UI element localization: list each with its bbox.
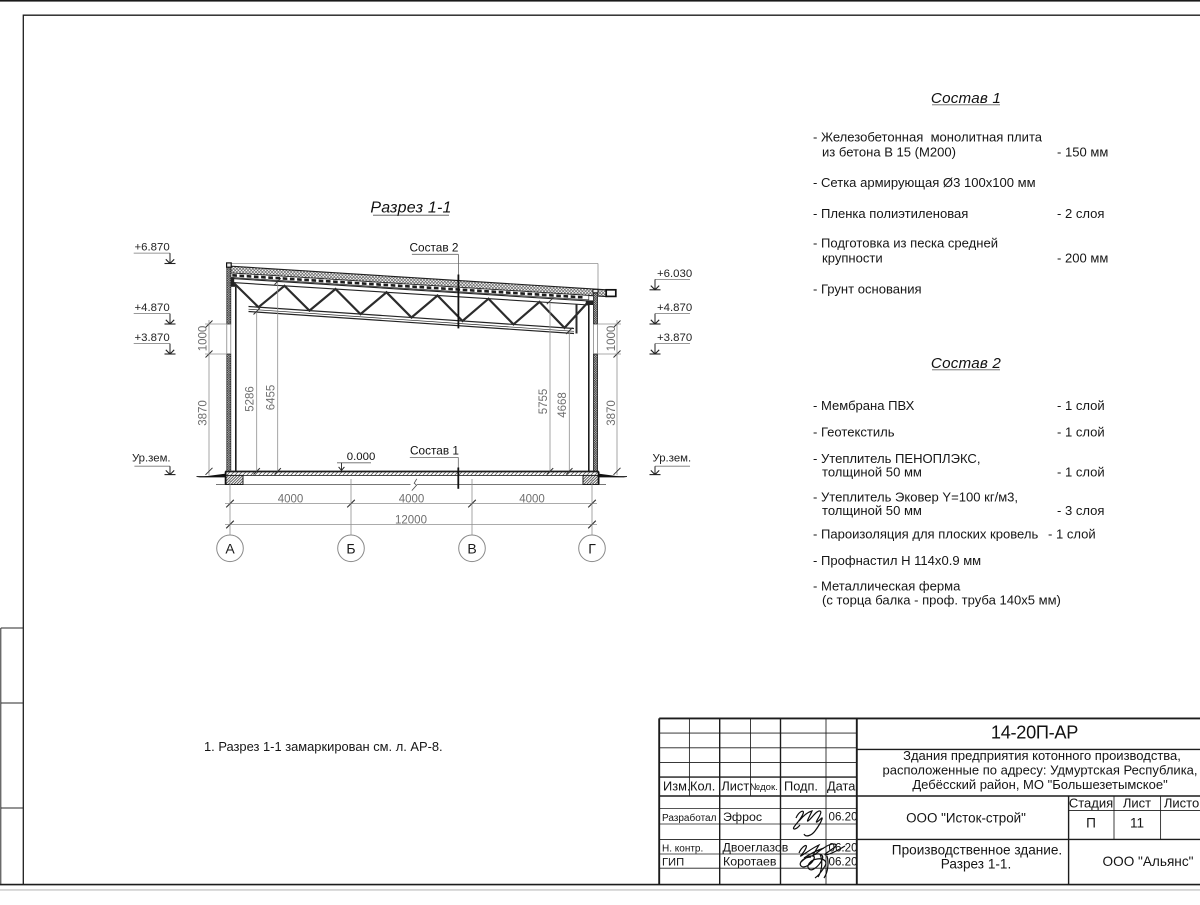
svg-text:+3.870: +3.870: [135, 332, 170, 344]
svg-text:- 1 слой: - 1 слой: [1057, 398, 1105, 413]
svg-text:4668: 4668: [557, 392, 569, 418]
svg-text:5755: 5755: [538, 389, 550, 415]
svg-text:В: В: [467, 540, 476, 556]
svg-text:1000: 1000: [197, 326, 209, 352]
svg-text:4000: 4000: [399, 493, 425, 505]
svg-text:ООО "Альянс": ООО "Альянс": [1103, 854, 1194, 869]
svg-text:№док.: №док.: [750, 782, 778, 793]
svg-text:П: П: [1086, 816, 1096, 831]
svg-text:+4.870: +4.870: [657, 302, 692, 314]
svg-text:- Пароизоляция для плоских кро: - Пароизоляция для плоских кровель: [813, 526, 1038, 541]
svg-text:11: 11: [1130, 816, 1144, 831]
svg-text:ГИП: ГИП: [662, 857, 684, 869]
svg-text:06.20: 06.20: [829, 811, 858, 824]
svg-text:Состав 2: Состав 2: [410, 240, 459, 254]
svg-text:Состав 1: Состав 1: [931, 90, 1001, 107]
svg-text:Коротаев: Коротаев: [723, 855, 777, 869]
svg-text:Ур.зем.: Ур.зем.: [653, 453, 692, 465]
svg-text:расположенные по адресу: Удмур: расположенные по адресу: Удмуртская Респ…: [882, 763, 1197, 778]
svg-text:1000: 1000: [606, 326, 618, 352]
svg-text:3870: 3870: [606, 400, 618, 426]
svg-text:- Сетка армирующая Ø3 100х100: - Сетка армирующая Ø3 100х100 мм: [813, 175, 1036, 190]
svg-text:6455: 6455: [266, 385, 278, 411]
svg-text:- Грунт основания: - Грунт основания: [813, 282, 922, 297]
svg-text:- 1 слой: - 1 слой: [1048, 526, 1096, 541]
svg-text:- 200 мм: - 200 мм: [1057, 251, 1108, 266]
svg-text:Дата: Дата: [827, 779, 856, 794]
svg-text:14-20П-АР: 14-20П-АР: [991, 722, 1078, 742]
svg-text:Подп.: Подп.: [784, 779, 818, 794]
svg-text:толщиной 50 мм: толщиной 50 мм: [822, 503, 922, 518]
svg-text:А: А: [225, 540, 235, 556]
svg-text:Н. контр.: Н. контр.: [662, 843, 703, 854]
svg-text:3870: 3870: [197, 400, 209, 426]
svg-text:- 150 мм: - 150 мм: [1057, 145, 1108, 160]
svg-text:+6.870: +6.870: [135, 242, 170, 254]
svg-text:4000: 4000: [519, 493, 545, 505]
svg-text:0.000: 0.000: [347, 451, 376, 463]
svg-text:Г: Г: [588, 540, 596, 556]
svg-text:- Металлическая ферма: - Металлическая ферма: [813, 578, 961, 593]
svg-text:4000: 4000: [278, 493, 304, 505]
svg-text:из бетона В 15 (М200): из бетона В 15 (М200): [822, 145, 956, 160]
svg-text:Ур.зем.: Ур.зем.: [132, 453, 171, 465]
svg-text:Состав 2: Состав 2: [931, 355, 1001, 372]
svg-text:12000: 12000: [395, 514, 427, 526]
svg-text:- Подготовка из песка средней: - Подготовка из песка средней: [813, 236, 998, 251]
svg-text:+3.870: +3.870: [657, 332, 692, 344]
svg-text:крупности: крупности: [822, 251, 883, 266]
svg-text:Разрез 1-1: Разрез 1-1: [370, 200, 451, 217]
svg-text:Разрез 1-1.: Разрез 1-1.: [941, 856, 1012, 871]
svg-text:Состав 1: Состав 1: [410, 444, 459, 458]
svg-text:+6.030: +6.030: [657, 268, 692, 280]
svg-text:Здания предприятия котонного п: Здания предприятия котонного производств…: [903, 748, 1181, 763]
svg-text:ООО "Исток-строй": ООО "Исток-строй": [906, 810, 1026, 825]
svg-text:06.20: 06.20: [829, 855, 858, 868]
svg-text:- 3 слоя: - 3 слоя: [1057, 503, 1104, 518]
svg-text:Кол.: Кол.: [690, 779, 715, 794]
svg-text:Эфрос: Эфрос: [723, 810, 762, 824]
svg-text:толщиной 50 мм: толщиной 50 мм: [822, 464, 922, 479]
svg-text:- Железобетонная монолитная п: - Железобетонная монолитная плита: [813, 130, 1043, 145]
svg-text:Стадия: Стадия: [1069, 796, 1113, 811]
svg-text:Изм.: Изм.: [663, 779, 690, 794]
svg-text:Листов: Листов: [1164, 796, 1200, 811]
svg-text:1. Разрез 1-1 замаркирован см.: 1. Разрез 1-1 замаркирован см. л. АР-8.: [204, 739, 443, 754]
svg-text:- Профнастил Н 114х0.9 мм: - Профнастил Н 114х0.9 мм: [813, 553, 981, 568]
svg-text:- Пленка полиэтиленовая: - Пленка полиэтиленовая: [813, 206, 968, 221]
svg-text:+4.870: +4.870: [135, 302, 170, 314]
svg-text:Лист: Лист: [1123, 796, 1151, 811]
svg-text:Лист: Лист: [721, 779, 749, 794]
svg-text:- Мембрана ПВХ: - Мембрана ПВХ: [813, 398, 915, 413]
svg-text:Б: Б: [346, 540, 355, 556]
svg-text:Двоеглазов: Двоеглазов: [723, 841, 789, 855]
svg-text:- 1 слой: - 1 слой: [1057, 424, 1105, 439]
svg-text:- 1 слой: - 1 слой: [1057, 464, 1105, 479]
svg-text:(с торца балка - проф. труба 1: (с торца балка - проф. труба 140х5 мм): [822, 592, 1061, 607]
svg-text:Дебёсский район, МО "Большезет: Дебёсский район, МО "Большезетымское": [912, 777, 1168, 792]
svg-text:5286: 5286: [245, 386, 257, 412]
svg-text:Разработал: Разработал: [662, 812, 717, 824]
svg-text:- 2 слоя: - 2 слоя: [1057, 206, 1104, 221]
svg-text:- Геотекстиль: - Геотекстиль: [813, 424, 895, 439]
